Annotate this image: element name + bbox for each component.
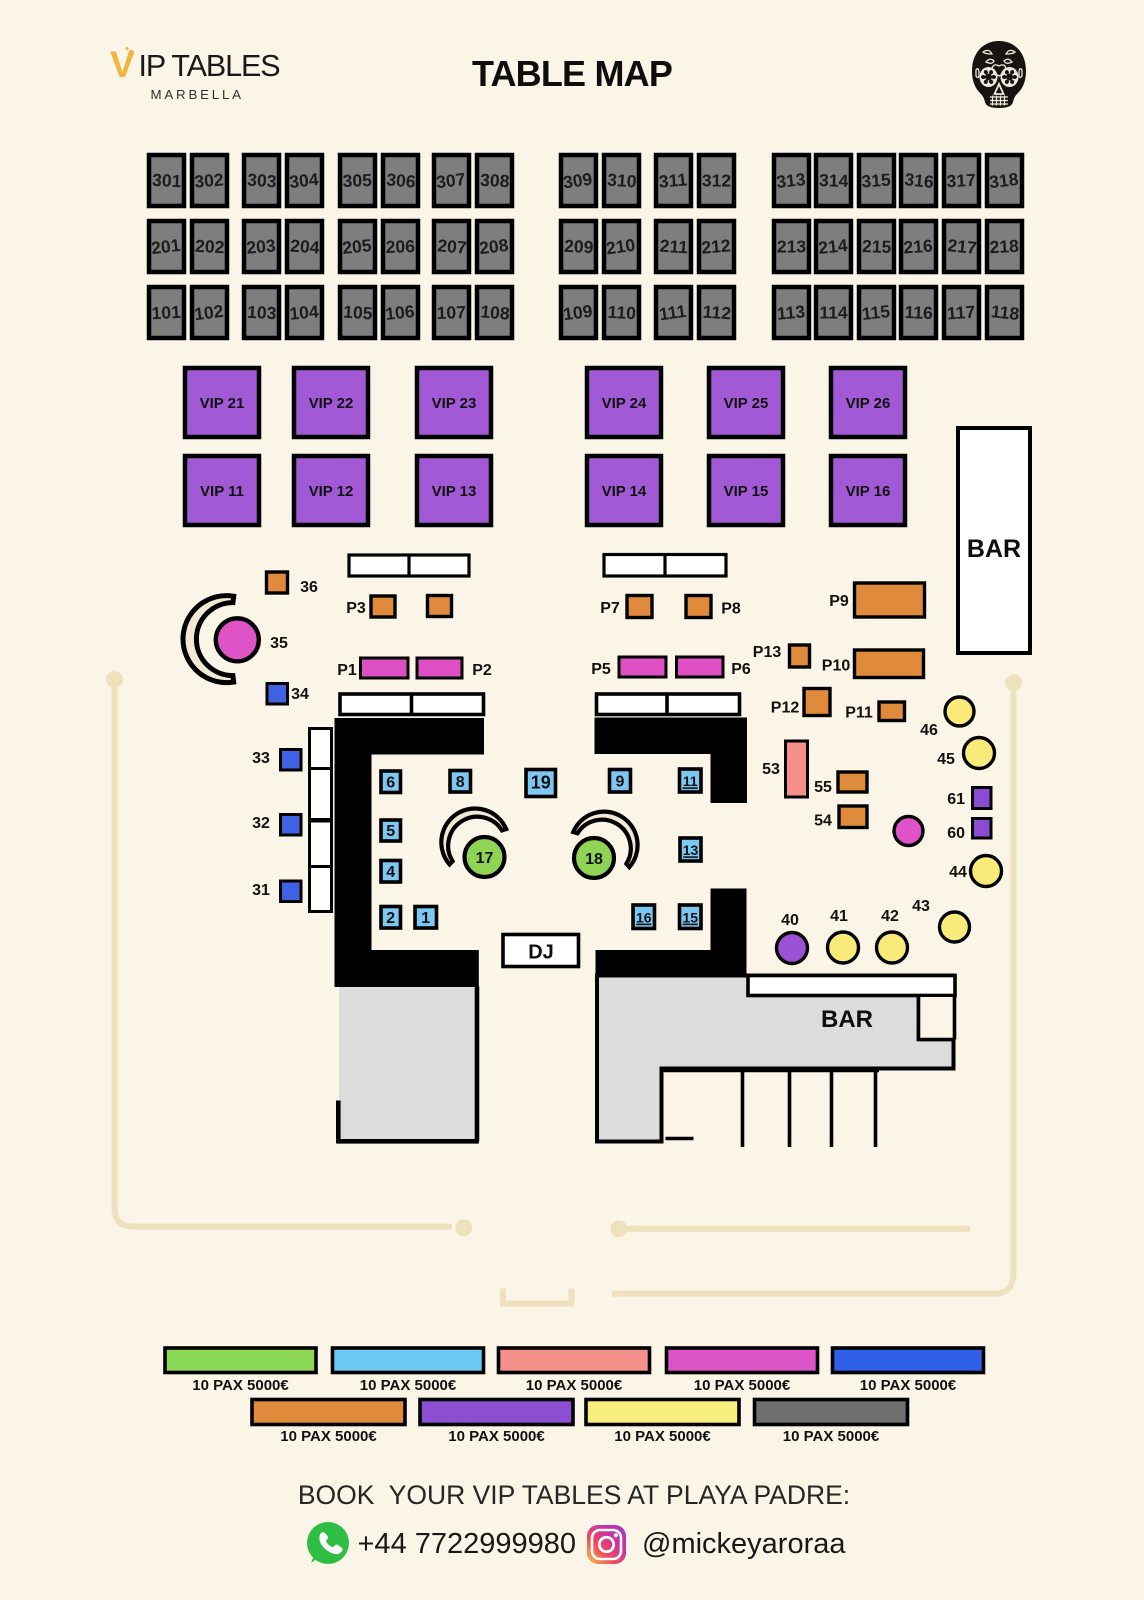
svg-text:33: 33 [252,750,270,767]
svg-text:218: 218 [989,236,1019,258]
svg-text:34: 34 [291,686,309,703]
svg-text:301: 301 [152,170,182,192]
svg-text:111: 111 [658,301,688,325]
svg-text:VIP 11: VIP 11 [200,483,244,500]
svg-text:10 PAX 5000€: 10 PAX 5000€ [192,1377,289,1394]
svg-text:309: 309 [562,169,594,193]
svg-text:P8: P8 [721,601,741,618]
svg-text:P2: P2 [472,662,492,679]
svg-text:16: 16 [636,909,652,925]
svg-text:303: 303 [247,170,278,192]
svg-text:104: 104 [289,301,320,323]
svg-text:212: 212 [701,235,732,257]
svg-text:BOOK YOUR VIP TABLES AT PLAYA: BOOK YOUR VIP TABLES AT PLAYA PADRE: [298,1480,850,1510]
svg-text:10 PAX 5000€: 10 PAX 5000€ [614,1428,711,1445]
svg-text:318: 318 [988,169,1020,192]
svg-text:46: 46 [920,722,938,739]
svg-text:105: 105 [343,302,374,324]
svg-text:312: 312 [702,171,731,191]
svg-text:BAR: BAR [821,1006,873,1033]
svg-text:TABLE MAP: TABLE MAP [472,53,672,94]
svg-text:107: 107 [436,302,466,323]
svg-text:112: 112 [702,302,732,324]
svg-text:211: 211 [659,236,689,258]
svg-text:8: 8 [456,774,465,791]
svg-text:106: 106 [384,301,415,324]
svg-text:115: 115 [861,301,891,324]
svg-text:19: 19 [531,773,551,793]
svg-text:302: 302 [194,169,225,191]
svg-text:5: 5 [386,823,395,840]
svg-text:36: 36 [300,579,318,596]
svg-text:P9: P9 [829,593,849,610]
svg-text:15: 15 [682,909,698,925]
svg-text:9: 9 [616,773,625,790]
svg-text:VIP 26: VIP 26 [846,395,891,412]
svg-text:202: 202 [195,236,225,258]
svg-text:208: 208 [478,235,510,258]
svg-text:18: 18 [585,851,603,868]
svg-text:32: 32 [252,815,270,832]
svg-text:316: 316 [904,169,935,192]
svg-text:+44 7722999980: +44 7722999980 [358,1528,577,1560]
svg-text:101: 101 [151,302,181,324]
svg-text:41: 41 [830,908,848,925]
svg-text:VIP 21: VIP 21 [200,395,245,412]
svg-text:13: 13 [683,842,699,858]
svg-text:P1: P1 [337,662,357,679]
svg-text:VIP 12: VIP 12 [309,483,354,500]
svg-text:P5: P5 [591,661,611,678]
svg-text:308: 308 [480,170,510,192]
svg-text:102: 102 [193,301,225,324]
svg-text:314: 314 [819,170,849,191]
svg-text:40: 40 [781,912,799,929]
svg-text:VIP 15: VIP 15 [724,483,769,500]
svg-text:11: 11 [683,773,698,789]
svg-text:103: 103 [247,302,277,324]
svg-text:VIP 14: VIP 14 [602,483,647,500]
svg-text:108: 108 [480,301,511,323]
svg-text:10 PAX 5000€: 10 PAX 5000€ [448,1428,545,1445]
svg-text:113: 113 [776,301,806,323]
svg-text:10 PAX 5000€: 10 PAX 5000€ [783,1428,880,1445]
svg-text:210: 210 [605,235,637,259]
svg-text:17: 17 [476,850,494,867]
svg-text:IP TABLES: IP TABLES [139,49,280,83]
svg-text:P12: P12 [771,700,800,717]
svg-text:10 PAX 5000€: 10 PAX 5000€ [694,1377,791,1394]
svg-text:6: 6 [386,774,395,791]
svg-text:VIP 16: VIP 16 [846,483,891,500]
svg-text:10 PAX 5000€: 10 PAX 5000€ [526,1377,623,1394]
svg-text:44: 44 [949,864,967,881]
svg-text:BAR: BAR [967,535,1021,563]
svg-text:P11: P11 [845,705,873,722]
svg-text:205: 205 [341,235,372,258]
svg-text:207: 207 [437,235,468,257]
svg-text:55: 55 [814,779,832,796]
svg-text:4: 4 [386,864,395,881]
svg-text:203: 203 [246,235,277,257]
svg-text:114: 114 [819,303,847,323]
svg-text:201: 201 [150,235,182,258]
svg-text:306: 306 [386,169,417,191]
svg-text:215: 215 [862,236,892,257]
svg-text:10 PAX 5000€: 10 PAX 5000€ [360,1377,457,1394]
svg-text:1: 1 [421,910,430,927]
svg-text:216: 216 [903,236,934,258]
svg-text:MARBELLA: MARBELLA [151,87,244,102]
svg-text:@mickeyaroraa: @mickeyaroraa [642,1528,846,1560]
svg-text:109: 109 [562,301,594,324]
svg-text:217: 217 [947,235,978,258]
svg-text:311: 311 [658,169,688,191]
svg-text:P6: P6 [731,661,751,678]
svg-text:304: 304 [288,169,319,192]
svg-text:206: 206 [385,236,415,257]
svg-text:118: 118 [990,301,1020,324]
svg-text:53: 53 [762,761,780,778]
svg-text:116: 116 [904,302,933,323]
svg-text:305: 305 [342,170,372,191]
svg-text:110: 110 [607,302,637,323]
svg-text:P3: P3 [346,600,366,617]
svg-text:45: 45 [937,751,955,768]
svg-text:307: 307 [435,169,466,192]
svg-text:P7: P7 [600,600,620,617]
svg-text:P13: P13 [753,644,782,661]
svg-text:213: 213 [777,237,806,257]
svg-text:VIP 13: VIP 13 [432,483,477,500]
svg-text:61: 61 [947,791,965,808]
svg-text:54: 54 [814,813,832,830]
svg-text:43: 43 [912,898,930,915]
svg-text:P10: P10 [822,658,851,675]
svg-text:214: 214 [817,235,848,258]
svg-text:117: 117 [946,302,976,324]
svg-text:313: 313 [775,169,806,192]
svg-text:2: 2 [386,910,395,927]
svg-text:31: 31 [252,882,270,899]
svg-text:310: 310 [607,170,638,192]
svg-text:317: 317 [946,170,976,192]
svg-text:VIP 25: VIP 25 [724,395,769,412]
svg-text:42: 42 [881,908,899,925]
svg-text:60: 60 [947,825,965,842]
svg-text:10 PAX 5000€: 10 PAX 5000€ [280,1428,377,1445]
svg-text:VIP 23: VIP 23 [432,395,477,412]
svg-text:315: 315 [861,170,892,192]
svg-text:VIP 22: VIP 22 [309,395,354,412]
svg-text:209: 209 [564,236,594,258]
svg-text:35: 35 [270,635,288,652]
svg-text:DJ: DJ [528,942,554,964]
svg-text:10 PAX 5000€: 10 PAX 5000€ [860,1377,957,1394]
svg-text:204: 204 [290,236,321,258]
svg-text:VIP 24: VIP 24 [602,395,647,412]
